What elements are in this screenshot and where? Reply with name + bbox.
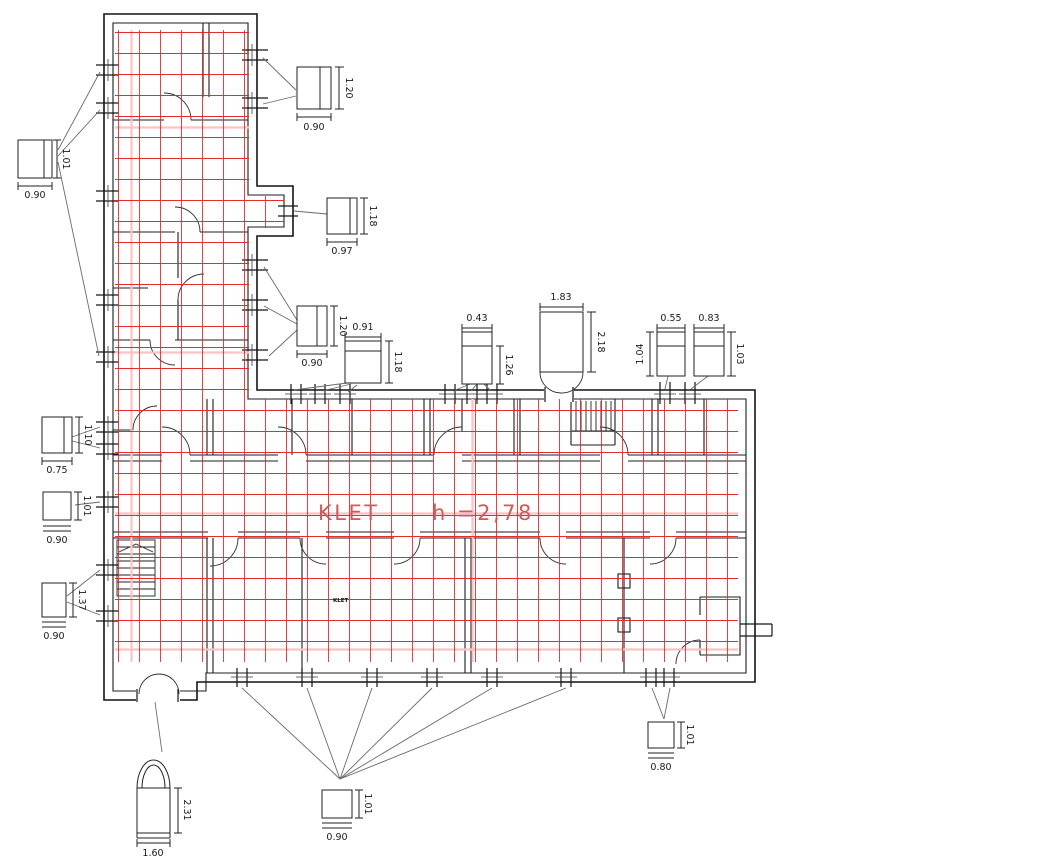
- callout-window-detail-top: 0.90 1.20: [297, 67, 354, 133]
- dimension-width-label: 0.91: [352, 322, 373, 333]
- dimension-width-label: 0.97: [331, 246, 352, 257]
- dimension-width-label: 0.75: [46, 465, 67, 476]
- dimension-width-label: 1.83: [550, 292, 571, 303]
- dimension-height-label: 1.01: [362, 793, 373, 814]
- callout-window-detail-mid-120: 0.90 1.20: [297, 306, 348, 369]
- dimension-width-label: 0.90: [301, 358, 322, 369]
- floor-plan-page: 0.90 1.20 0.90 1.01 0.97 1.18 0.90 1.20 …: [0, 0, 1042, 866]
- callout-window-detail-075: 0.75 1.10: [42, 417, 93, 476]
- dimension-height-label: 1.37: [76, 589, 87, 610]
- callout-window-detail-055: 0.55 1.04: [635, 313, 685, 376]
- callout-window-detail-bottom-right: 0.80 1.01: [648, 722, 695, 773]
- dimension-height-label: 2.31: [181, 799, 192, 820]
- room-name-label: KLET: [318, 501, 380, 525]
- dimension-height-label: 1.20: [343, 77, 354, 98]
- dimension-height-label: 1.04: [635, 343, 646, 364]
- dimension-width-label: 0.90: [43, 631, 64, 642]
- dimension-height-label: 1.10: [82, 424, 93, 445]
- dimension-height-label: 1.20: [337, 315, 348, 336]
- dimension-width-label: 0.80: [650, 762, 671, 773]
- dimension-width-label: 0.90: [303, 122, 324, 133]
- callout-window-detail-left-mid: 0.90 1.01: [43, 492, 92, 546]
- dimension-height-label: 1.01: [684, 724, 695, 745]
- dimension-width-label: 0.90: [326, 832, 347, 843]
- dimension-height-label: 1.18: [367, 205, 378, 226]
- dimension-height-label: 2.18: [595, 331, 606, 352]
- dimension-height-label: 1.01: [81, 495, 92, 516]
- callout-window-detail-091: 0.91 1.18: [345, 322, 403, 383]
- dimension-width-label: 0.43: [466, 313, 487, 324]
- dimension-height-label: 1.18: [392, 351, 403, 372]
- dimension-height-label: 1.01: [60, 148, 71, 169]
- dimension-width-label: 0.90: [46, 535, 67, 546]
- callout-window-detail-083: 0.83 1.03: [694, 313, 745, 376]
- callout-window-detail-043: 0.43 1.26: [462, 313, 514, 384]
- callout-arched-door-detail: 1.60 2.31: [137, 760, 192, 859]
- callout-entrance-door-detail: 1.83 2.18: [540, 292, 606, 393]
- dimension-height-label: 1.03: [734, 343, 745, 364]
- dimension-width-label: 1.60: [142, 848, 163, 859]
- callout-window-detail-137: 0.90 1.37: [42, 583, 87, 642]
- callout-window-detail-bottom: 0.90 1.01: [322, 790, 373, 843]
- red-grid-overlay: [100, 14, 760, 694]
- dimension-width-label: 0.55: [660, 313, 681, 324]
- dimension-height-label: 1.26: [503, 354, 514, 375]
- dimension-width-label: 0.90: [24, 190, 45, 201]
- room-height-label: h =2,78: [432, 501, 534, 525]
- callout-window-detail-097: 0.97 1.18: [327, 198, 378, 257]
- mini-room-label: KLET: [333, 598, 349, 604]
- dimension-width-label: 0.83: [698, 313, 719, 324]
- callout-window-detail-left-upper: 0.90 1.01: [18, 140, 71, 201]
- floor-plan-canvas: 0.90 1.20 0.90 1.01 0.97 1.18 0.90 1.20 …: [0, 0, 1042, 866]
